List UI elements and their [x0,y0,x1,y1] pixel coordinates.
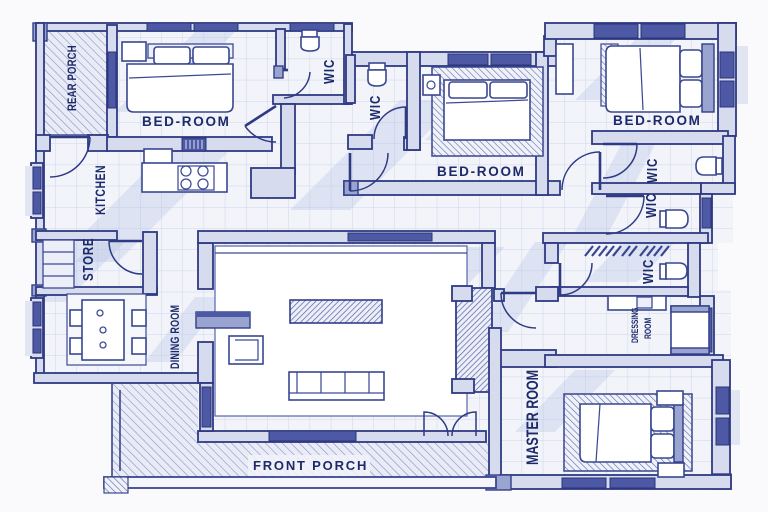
svg-text:WIC: WIC [640,259,657,284]
svg-text:REAR PORCH: REAR PORCH [66,45,79,111]
svg-text:KITCHEN: KITCHEN [93,165,109,215]
svg-text:WIC: WIC [643,193,660,218]
svg-text:MASTER ROOM: MASTER ROOM [524,370,542,465]
svg-text:DINING ROOM: DINING ROOM [169,305,183,369]
svg-text:FRONT PORCH: FRONT PORCH [253,458,368,473]
svg-text:DRESSING: DRESSING [630,308,640,343]
svg-text:ROOM: ROOM [643,318,653,339]
svg-text:WIC: WIC [367,95,384,120]
svg-text:STORE: STORE [80,238,97,281]
svg-text:WIC: WIC [644,158,661,183]
svg-text:BED-ROOM: BED-ROOM [142,114,231,129]
svg-text:BED-ROOM: BED-ROOM [613,113,702,128]
svg-text:BED-ROOM: BED-ROOM [437,164,526,179]
svg-text:WIC: WIC [321,59,338,84]
